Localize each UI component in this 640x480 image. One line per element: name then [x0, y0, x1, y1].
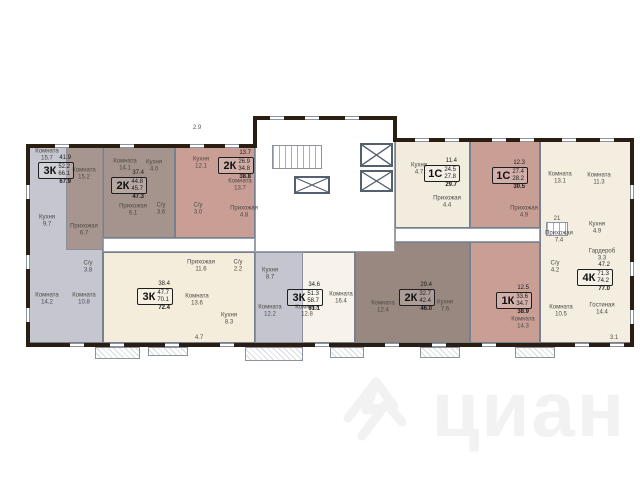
- room-label-23: С/у4.2: [551, 261, 560, 274]
- area-total: 29.7: [424, 182, 460, 189]
- area-top: 12.5: [496, 285, 532, 292]
- room-label-5: Комната14.2: [35, 293, 59, 306]
- room-label-36: Кухня8.3: [221, 313, 237, 326]
- apartment-type-box: 1С27.428.2: [492, 167, 528, 184]
- apartment-type-box: 3К51.358.7: [287, 289, 323, 306]
- cian-watermark: циан: [336, 366, 626, 452]
- apt-2k-topmid-label: 13.72К26.934.838.8: [218, 150, 254, 181]
- area-top: 29.4: [399, 282, 435, 289]
- apartment-type: 1К: [501, 295, 514, 307]
- area-mid: 71.374.2: [597, 271, 609, 284]
- apt-2k-bottom-label: 29.42К32.742.446.0: [399, 282, 435, 313]
- area-mid: 47.770.1: [157, 290, 169, 303]
- window-mark-7: [415, 138, 429, 142]
- cian-bird-icon: [336, 366, 422, 452]
- area-total: 67.9: [38, 179, 74, 186]
- window-mark-v5: [630, 310, 634, 324]
- room-label-35: Комната13.6: [185, 294, 209, 307]
- window-mark-14: [110, 343, 124, 347]
- area-top: 41.9: [38, 155, 74, 162]
- area-total: 61.1: [287, 306, 323, 313]
- apartment-type: 1С: [496, 170, 510, 182]
- room-label-25: Гостиная14.4: [589, 303, 614, 316]
- window-mark-v1: [26, 255, 30, 269]
- apartment-type: 3К: [142, 291, 155, 303]
- apt-4k-label: 47.24К71.374.277.0: [577, 262, 613, 293]
- area-top: 11.4: [424, 158, 460, 165]
- window-mark-16: [220, 343, 234, 347]
- wall-top-right: [395, 138, 634, 142]
- area-total: 38.9: [496, 309, 532, 316]
- window-mark-18: [385, 343, 399, 347]
- corridor-left: [103, 238, 255, 252]
- balcony-1: [95, 347, 140, 359]
- elevator-icon-3: [360, 170, 393, 192]
- balcony-6: [515, 347, 555, 358]
- dimension-label-2: 3.1: [610, 335, 618, 341]
- apartment-type-box: 2К44.845.7: [111, 177, 147, 194]
- apartment-type-box: 3К52.266.1: [38, 162, 74, 179]
- room-label-4: С/у3.8: [84, 261, 93, 274]
- window-mark-15: [165, 343, 179, 347]
- window-mark-6: [345, 116, 359, 120]
- room-label-6: Комната10.8: [72, 293, 96, 306]
- window-mark-12: [600, 138, 614, 142]
- window-mark-4: [270, 116, 284, 120]
- window-mark-3: [225, 144, 239, 148]
- window-mark-v2: [26, 308, 30, 322]
- apartment-type: 3К: [43, 165, 56, 177]
- room-label-3: Прихожая6.7: [70, 224, 98, 237]
- room-label-14: Прихожая4.8: [230, 206, 258, 219]
- window-mark-9: [492, 138, 506, 142]
- window-mark-0: [55, 144, 69, 148]
- room-label-20: Кухня4.9: [589, 222, 605, 235]
- balcony-5: [420, 347, 460, 358]
- apt-1s-1-label: 11.41С24.527.829.7: [424, 158, 460, 189]
- floorplan: циан 41.93К52.266.167.937.42К44.845.747.…: [0, 0, 640, 480]
- room-label-11: Кухня12.1: [193, 157, 209, 170]
- area-mid: 24.527.8: [444, 167, 456, 180]
- apt-3k-bottommid-label: 34.63К51.358.761.1: [287, 282, 323, 313]
- window-mark-2: [190, 144, 204, 148]
- room-label-33: Прихожая11.6: [187, 260, 215, 273]
- apt-1k-label: 12.51К33.634.738.9: [496, 285, 532, 316]
- apartment-type: 3К: [292, 292, 305, 304]
- window-mark-v4: [630, 262, 634, 276]
- room-label-16: Прихожая4.4: [433, 196, 461, 209]
- room-label-17: Прихожая4.9: [510, 206, 538, 219]
- apartment-type: 2К: [223, 160, 236, 172]
- window-mark-17: [315, 343, 329, 347]
- room-label-13: С/у3.0: [194, 203, 203, 216]
- area-top: 12.3: [492, 160, 528, 167]
- area-top: 37.4: [111, 170, 147, 177]
- area-total: 46.0: [399, 306, 435, 313]
- window-mark-1: [120, 144, 134, 148]
- room-label-27: Кухня7.6: [437, 300, 453, 313]
- apt-2k-topleft-label: 37.42К44.845.747.3: [111, 170, 147, 201]
- apartment-type: 2К: [116, 180, 129, 192]
- window-mark-v3: [630, 185, 634, 199]
- staircase-icon: [272, 145, 322, 169]
- room-label-21: Прихожая7.4: [545, 231, 573, 244]
- room-label-29: Кухня8.7: [262, 268, 278, 281]
- area-top: 38.4: [137, 281, 173, 288]
- wall-connector-right: [393, 116, 397, 142]
- window-mark-20: [482, 343, 496, 347]
- area-total: 77.0: [577, 286, 613, 293]
- apartment-type-box: 2К26.934.8: [218, 157, 254, 174]
- apartment-type-box: 1С24.527.8: [424, 165, 460, 182]
- elevator-icon-1: [294, 176, 330, 194]
- window-mark-11: [562, 138, 576, 142]
- room-label-10: С/у3.6: [157, 203, 166, 216]
- apartment-type-box: 3К47.770.1: [137, 288, 173, 305]
- window-mark-5: [305, 116, 319, 120]
- window-mark-21: [575, 343, 589, 347]
- area-top: 13.7: [218, 150, 254, 157]
- window-mark-8: [445, 138, 459, 142]
- balcony-2: [148, 347, 188, 356]
- dimension-label-1: 4.7: [195, 335, 203, 341]
- area-mid: 44.845.7: [131, 179, 143, 192]
- watermark-text: циан: [432, 374, 626, 444]
- area-mid: 33.634.7: [516, 294, 528, 307]
- dimension-label-0: 2.9: [193, 125, 201, 131]
- room-label-2: Кухня9.7: [39, 215, 55, 228]
- dimension-label-3: 21: [554, 216, 561, 222]
- area-total: 30.5: [492, 184, 528, 191]
- area-total: 47.3: [111, 194, 147, 201]
- room-label-30: Комната12.2: [258, 305, 282, 318]
- area-top: 47.2: [577, 262, 613, 269]
- apartment-type-box: 4К71.374.2: [577, 269, 613, 286]
- corridor-right: [395, 228, 540, 242]
- wall-connector-left: [253, 116, 257, 148]
- apartment-type: 1С: [428, 168, 442, 180]
- elevator-icon-2: [360, 143, 393, 167]
- apt-3k-left-label: 41.93К52.266.167.9: [38, 155, 74, 186]
- apt-1s-2-label: 12.31С27.428.230.5: [492, 160, 528, 191]
- balcony-3: [245, 347, 303, 361]
- window-mark-22: [610, 343, 624, 347]
- room-label-28: Комната12.4: [371, 301, 395, 314]
- apartment-type: 4К: [582, 272, 595, 284]
- apartment-type-box: 1К33.634.7: [496, 292, 532, 309]
- area-total: 38.8: [218, 174, 254, 181]
- room-label-22: Гардероб3.3: [589, 249, 615, 262]
- area-mid: 26.934.8: [238, 159, 250, 172]
- window-mark-19: [432, 343, 446, 347]
- room-label-8: Кухня4.0: [146, 160, 162, 173]
- window-mark-10: [520, 138, 534, 142]
- balcony-4: [330, 347, 364, 358]
- apartment-type-box: 2К32.742.4: [399, 289, 435, 306]
- room-label-1: Комната15.2: [72, 168, 96, 181]
- area-mid: 32.742.4: [419, 291, 431, 304]
- room-label-19: Комната11.3: [587, 173, 611, 186]
- area-mid: 27.428.2: [512, 169, 524, 182]
- room-label-9: Прихожая6.1: [119, 204, 147, 217]
- area-top: 34.6: [287, 282, 323, 289]
- area-mid: 51.358.7: [307, 291, 319, 304]
- window-mark-v0: [26, 185, 30, 199]
- area-mid: 52.266.1: [58, 164, 70, 177]
- room-label-26: Комната14.3: [511, 317, 535, 330]
- apartment-type: 2К: [404, 292, 417, 304]
- room-label-34: С/у2.2: [234, 260, 243, 273]
- room-label-24: Комната10.5: [549, 305, 573, 318]
- room-label-18: Комната13.1: [548, 172, 572, 185]
- window-mark-13: [70, 343, 84, 347]
- room-label-32: Комната16.4: [329, 292, 353, 305]
- apt-3k-bottomleft-area: [103, 252, 255, 343]
- area-total: 72.4: [137, 305, 173, 312]
- apt-3k-bottomleft-label: 38.43К47.770.172.4: [137, 281, 173, 312]
